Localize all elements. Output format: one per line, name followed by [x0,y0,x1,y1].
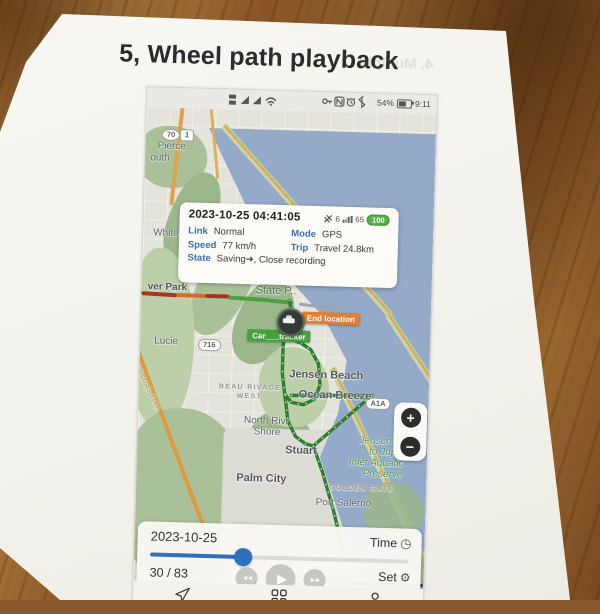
back-page-ghost-text: 4, Multiple [360,54,434,73]
playback-date: 2023-10-25 [151,528,218,545]
satellite-icon [323,214,332,223]
set-label: Set [378,570,397,585]
map-label-beau-rivage-west: WEST [237,393,263,401]
mode-label: Mode [291,227,316,241]
playback-slider[interactable] [150,552,408,563]
zoom-controls: + − [393,402,428,461]
route-shield-716: 716 [198,339,221,352]
map-label-aquatic-3: Inlet Aquatic [349,457,404,470]
key-nfc-alarm-bluetooth-icons [322,95,374,108]
slider-thumb[interactable] [234,547,252,565]
paper-sheet: 5, Wheel path playback 4, Multiple [0,0,600,600]
map-canvas[interactable]: 70 1 716 A1A Pierce outh White C ver Par… [133,107,436,589]
link-value: Normal [214,225,245,239]
phone-screenshot: 54% 9:11 [132,86,438,609]
map-label-preserve-state-2: State P.. [255,284,296,297]
map-label-pierce: Pierce [157,141,186,153]
speed-label: Speed [188,238,217,252]
zoom-in-button[interactable]: + [400,407,421,428]
map-label-north-river-1: North Rivr [244,415,289,427]
signal-bars-icon [343,215,353,223]
battery-icon [397,99,412,108]
zoom-out-button[interactable]: − [400,436,421,457]
popup-signal-value: 65 [355,215,364,224]
state-label: State [187,251,211,265]
popup-battery-pill: 100 [367,214,390,226]
popup-satellite-count: 6 [335,214,340,223]
route-shield-1: 1 [180,129,195,141]
map-label-south: outh [150,152,170,164]
time-button[interactable]: Time ◷ [370,535,412,552]
car-glyph [283,318,295,323]
battery-percent: 54% [377,98,394,108]
map-label-river-park: ver Park [148,281,188,293]
send-nav-icon[interactable] [173,586,191,602]
link-label: Link [188,224,208,238]
map-label-jensen-beach: Jensen Beach [289,368,363,382]
mode-value: GPS [322,228,342,242]
map-label-port-salerno: Port Salerno [316,497,372,510]
map-label-north-river-2: Shore [254,426,281,438]
state-value: Saving➔, Close recording [217,252,326,269]
speed-value: 77 km/h [222,239,256,253]
grid-nav-icon[interactable] [271,589,287,605]
playback-route-path [133,107,436,589]
map-label-lucie: Lucie [154,336,178,348]
popup-datetime: 2023-10-25 04:41:05 [189,208,301,223]
clock-time: 9:11 [415,99,431,109]
page-title: 5, Wheel path playback [119,39,399,76]
slider-fill [150,552,243,558]
set-button[interactable]: Set ⚙ [378,570,411,585]
status-left-icons [229,94,287,108]
notification-signal-wifi-icons [229,94,287,108]
clock-icon: ◷ [400,535,412,551]
end-location-badge: End location [302,312,360,326]
tracker-info-popup: 2023-10-25 04:41:05 6 65 100 [178,202,399,288]
gear-icon: ⚙ [400,570,411,584]
map-label-aquatic-4: Preserve [362,468,402,480]
trip-label: Trip [291,241,309,255]
time-label: Time [370,536,398,551]
map-label-stuart: Stuart [285,444,317,457]
map-label-palm-city: Palm City [236,472,286,485]
map-label-ocean-breeze: Ocean Breeze [299,389,372,403]
frame-counter: 30 / 83 [149,565,188,580]
playback-panel: 2023-10-25 Time ◷ 30 / 83 ◄◄ ▶ ►► Set ⚙ [136,521,422,589]
